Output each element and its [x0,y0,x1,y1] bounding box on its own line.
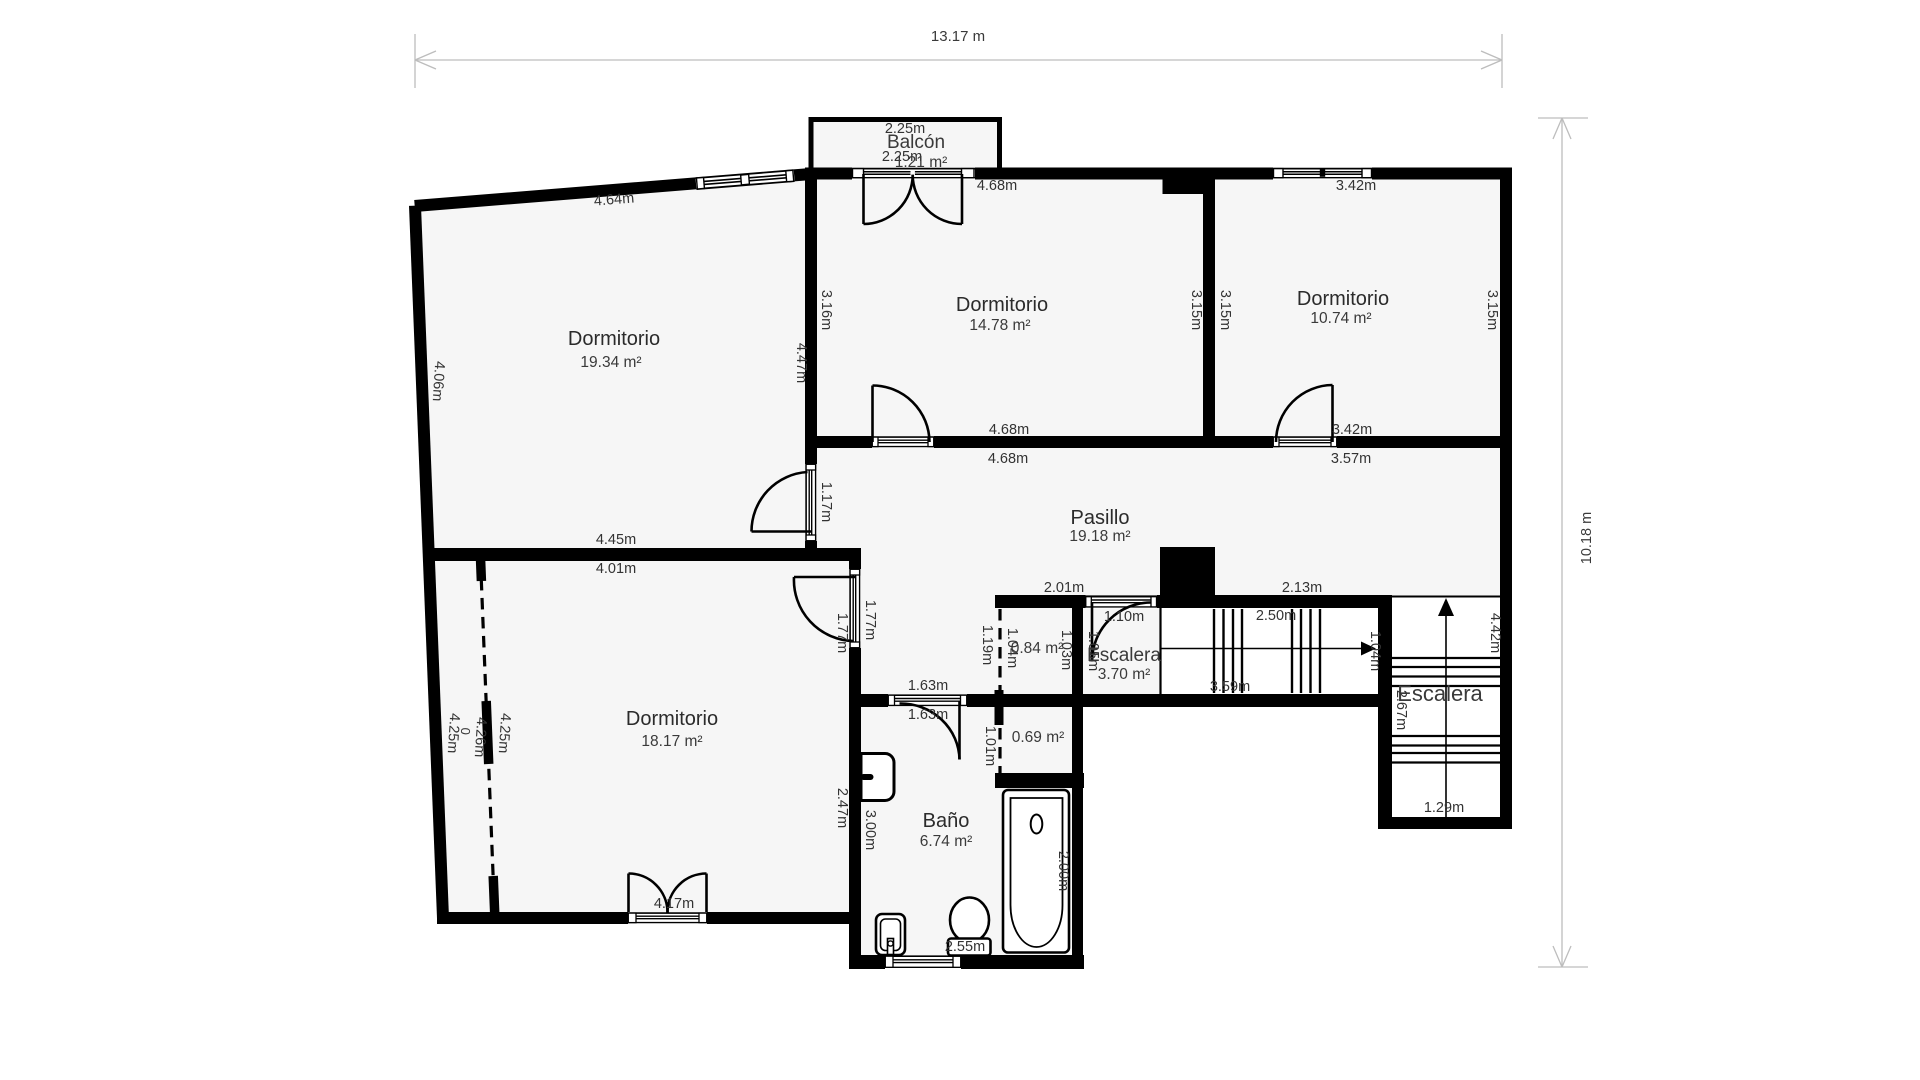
svg-text:1.05m: 1.05m [1085,631,1101,671]
svg-text:2.13m: 2.13m [1282,580,1322,596]
svg-text:3.42m: 3.42m [1336,178,1376,194]
svg-text:4.64m: 4.64m [593,190,634,209]
svg-text:1.04m: 1.04m [1004,628,1020,668]
svg-text:1.03m: 1.03m [1058,630,1074,670]
svg-text:4.25m: 4.25m [495,713,513,754]
svg-text:13.17 m: 13.17 m [931,28,985,45]
svg-text:4.68m: 4.68m [989,422,1029,438]
svg-text:1.01m: 1.01m [982,726,998,766]
svg-text:3.70 m²: 3.70 m² [1098,666,1151,683]
svg-text:4.01m: 4.01m [596,561,636,577]
svg-text:2.01m: 2.01m [1044,580,1084,596]
svg-text:Escalera: Escalera [1397,681,1483,706]
svg-text:10.74 m²: 10.74 m² [1310,310,1371,327]
svg-text:3.57m: 3.57m [1331,451,1371,467]
svg-text:4.68m: 4.68m [988,451,1028,467]
svg-text:1.10m: 1.10m [1104,609,1144,625]
svg-text:3.42m: 3.42m [1332,422,1372,438]
svg-text:1.19m: 1.19m [979,625,995,665]
svg-text:1.63m: 1.63m [908,678,948,694]
svg-text:Dormitorio: Dormitorio [568,328,660,350]
svg-text:18.17 m²: 18.17 m² [641,733,702,750]
svg-text:3.15m: 3.15m [1217,290,1233,330]
svg-text:4.45m: 4.45m [596,532,636,548]
svg-text:1.77m: 1.77m [862,600,878,640]
svg-text:1.29m: 1.29m [1424,800,1464,816]
svg-text:Dormitorio: Dormitorio [626,708,718,730]
svg-text:3.15m: 3.15m [1484,290,1500,330]
svg-text:0: 0 [458,727,473,735]
svg-text:1.21 m²: 1.21 m² [895,154,948,171]
svg-text:0.69 m²: 0.69 m² [1012,729,1065,746]
svg-text:4.68m: 4.68m [977,178,1017,194]
svg-text:Baño: Baño [923,810,970,832]
svg-text:2.67m: 2.67m [1393,690,1409,730]
svg-text:1.77m: 1.77m [834,613,850,653]
svg-text:4.06m: 4.06m [429,361,447,402]
svg-text:Dormitorio: Dormitorio [1297,288,1389,310]
svg-text:4.42m: 4.42m [1487,613,1503,653]
svg-text:3.15m: 3.15m [1188,290,1204,330]
svg-text:3.59m: 3.59m [1210,679,1250,695]
svg-text:19.34 m²: 19.34 m² [580,354,641,371]
svg-text:10.18 m: 10.18 m [1579,512,1595,564]
svg-text:2.50m: 2.50m [1256,608,1296,624]
svg-text:2.55m: 2.55m [945,939,985,955]
svg-text:3.00m: 3.00m [862,810,878,850]
svg-text:4.26m: 4.26m [471,717,489,758]
svg-text:2.47m: 2.47m [834,788,850,828]
svg-text:1.17m: 1.17m [818,482,834,522]
svg-text:4.17m: 4.17m [654,896,694,912]
svg-text:Dormitorio: Dormitorio [956,294,1048,316]
svg-text:14.78 m²: 14.78 m² [969,317,1030,334]
svg-text:1.63m: 1.63m [908,707,948,723]
svg-text:6.74 m²: 6.74 m² [920,833,973,850]
svg-text:1.04m: 1.04m [1367,631,1383,671]
svg-text:3.16m: 3.16m [818,290,834,330]
svg-text:2.00m: 2.00m [1055,851,1071,891]
svg-text:19.18 m²: 19.18 m² [1069,528,1130,545]
svg-text:2.25m: 2.25m [885,121,925,137]
svg-text:Pasillo: Pasillo [1071,507,1130,529]
svg-text:4.47m: 4.47m [793,343,809,383]
